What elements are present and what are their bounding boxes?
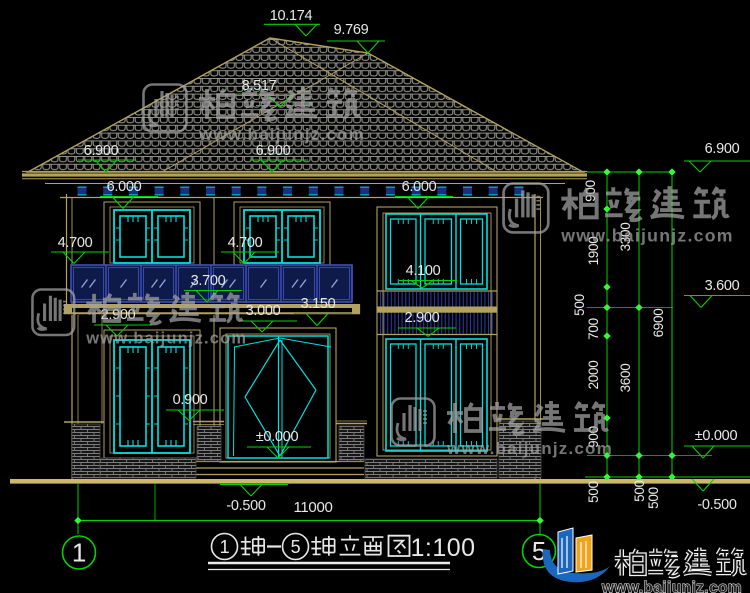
svg-text:500: 500 (646, 487, 661, 509)
svg-text:4.700: 4.700 (228, 235, 263, 251)
svg-text:6.000: 6.000 (402, 179, 437, 195)
svg-text:500: 500 (586, 481, 601, 503)
svg-text:500: 500 (632, 480, 647, 502)
svg-text:4.100: 4.100 (406, 263, 441, 279)
svg-text:3.700: 3.700 (191, 273, 226, 289)
svg-text:6.000: 6.000 (107, 179, 142, 195)
svg-text:3.150: 3.150 (301, 296, 336, 312)
svg-text:www.baijunjz.com: www.baijunjz.com (446, 439, 613, 458)
svg-text:2000: 2000 (586, 361, 601, 390)
svg-text:5: 5 (291, 537, 301, 557)
svg-text:9.769: 9.769 (334, 22, 369, 38)
svg-text:2.900: 2.900 (405, 310, 440, 326)
svg-text:6.900: 6.900 (84, 143, 119, 159)
svg-text:6900: 6900 (651, 309, 666, 338)
svg-text:6.900: 6.900 (705, 141, 740, 157)
svg-text:www.baijunjz.com: www.baijunjz.com (560, 225, 733, 245)
svg-text:-0.500: -0.500 (226, 498, 266, 514)
svg-text:6.900: 6.900 (256, 143, 291, 159)
svg-text:500: 500 (572, 294, 587, 316)
svg-text:4.700: 4.700 (58, 235, 93, 251)
svg-text:11000: 11000 (293, 499, 332, 516)
svg-text:www.baijunjz.com: www.baijunjz.com (601, 580, 742, 593)
svg-text:±0.000: ±0.000 (695, 428, 738, 444)
svg-text:8.517: 8.517 (242, 78, 277, 94)
svg-text:700: 700 (586, 318, 601, 340)
svg-text:1: 1 (220, 537, 230, 557)
svg-text:1:100: 1:100 (410, 534, 475, 562)
svg-text:www.baijunjz.com: www.baijunjz.com (198, 125, 365, 144)
svg-text:-0.500: -0.500 (697, 497, 737, 513)
svg-text:3.000: 3.000 (246, 303, 281, 319)
svg-text:0.900: 0.900 (173, 392, 208, 408)
svg-text:www.baijunjz.com: www.baijunjz.com (85, 329, 247, 347)
svg-text:1: 1 (72, 538, 86, 568)
svg-text:3600: 3600 (618, 364, 633, 393)
svg-text:±0.000: ±0.000 (256, 429, 299, 445)
svg-text:3.600: 3.600 (705, 278, 740, 294)
svg-text:10.174: 10.174 (270, 8, 313, 24)
